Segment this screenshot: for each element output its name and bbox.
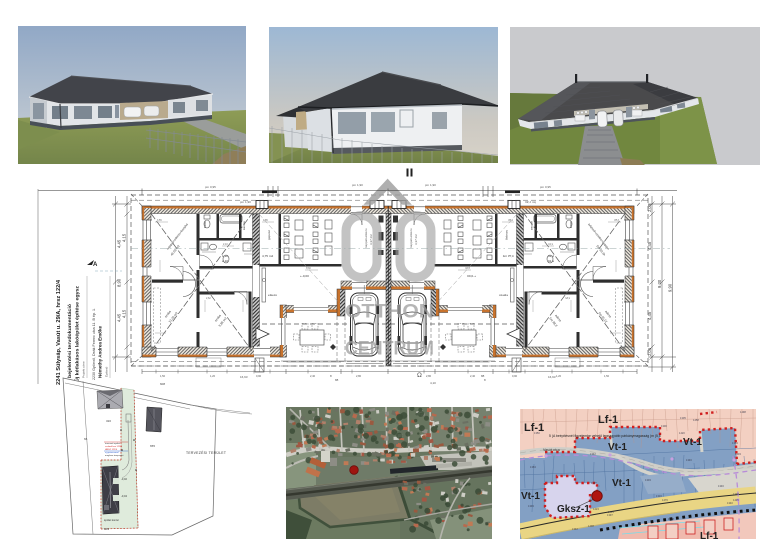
svg-text:3,30: 3,30 xyxy=(306,267,311,270)
svg-text:gepesz: gepesz xyxy=(505,230,509,240)
svg-text:+-0,00: +-0,00 xyxy=(300,274,309,278)
svg-text:bejelentési tervdokumentáció: bejelentési tervdokumentáció xyxy=(67,304,72,378)
svg-text:pm 0,95: pm 0,95 xyxy=(205,185,216,189)
svg-text:kamra: kamra xyxy=(242,221,246,230)
svg-text:+-0,00: +-0,00 xyxy=(467,274,476,278)
svg-text:1342: 1342 xyxy=(572,527,578,531)
svg-text:16,93: 16,93 xyxy=(240,375,248,379)
svg-text:TERVEZÉSI TERÜLET: TERVEZÉSI TERÜLET xyxy=(186,450,226,455)
svg-text:609: 609 xyxy=(104,527,109,531)
svg-text:1300: 1300 xyxy=(591,481,597,485)
svg-text:608: 608 xyxy=(160,382,165,386)
svg-text:kamra: kamra xyxy=(530,221,534,230)
svg-text:2,62: 2,62 xyxy=(206,297,211,300)
svg-text:1403: 1403 xyxy=(735,452,741,456)
svg-text:1305: 1305 xyxy=(680,416,686,420)
svg-text:-0,02: -0,02 xyxy=(121,477,127,481)
svg-text:Ω: Ω xyxy=(417,372,422,379)
svg-text:Lf-1: Lf-1 xyxy=(598,414,618,426)
svg-text:655: 655 xyxy=(150,444,155,448)
svg-text:3,55: 3,55 xyxy=(614,219,619,222)
svg-text:3,55: 3,55 xyxy=(157,219,162,222)
svg-text:Építtető: Építtető xyxy=(104,366,109,377)
svg-text:2,80: 2,80 xyxy=(426,374,432,378)
svg-text:1363: 1363 xyxy=(530,465,536,469)
svg-text:0,90: 0,90 xyxy=(256,374,262,378)
svg-text:1300: 1300 xyxy=(661,424,667,428)
svg-text:Lf-1: Lf-1 xyxy=(700,531,719,539)
svg-text:1,85: 1,85 xyxy=(508,219,513,222)
svg-text:pm 1,90: pm 1,90 xyxy=(525,200,536,204)
svg-text:2230 Gyömrő, Deák Ferenc utca: 2230 Gyömrő, Deák Ferenc utca 11. B ép. … xyxy=(92,308,96,380)
svg-text:1498: 1498 xyxy=(740,410,746,414)
svg-text:1476: 1476 xyxy=(662,498,668,502)
svg-text:16,93: 16,93 xyxy=(548,375,556,379)
svg-text:320: 320 xyxy=(106,419,111,423)
svg-text:nappali-etkezo: nappali-etkezo xyxy=(364,228,368,248)
svg-text:-0,04: -0,04 xyxy=(121,494,127,498)
svg-text:4,75 m2: 4,75 m2 xyxy=(503,254,514,258)
svg-text:5 (A beépítésnél figyelembe ve: 5 (A beépítésnél figyelembe vehető legna… xyxy=(549,434,661,438)
svg-text:OTTHON: OTTHON xyxy=(345,301,434,323)
svg-text:4,45: 4,45 xyxy=(647,311,652,320)
svg-text:2,10: 2,10 xyxy=(222,259,228,263)
svg-text:3,37 m2: 3,37 m2 xyxy=(414,234,418,245)
svg-text:2,40: 2,40 xyxy=(470,374,476,378)
svg-text:Vasút utca: Vasút utca xyxy=(543,448,560,452)
svg-text:4,15: 4,15 xyxy=(122,233,127,242)
svg-text:3,37 m2: 3,37 m2 xyxy=(369,234,373,245)
svg-text:gepesz: gepesz xyxy=(267,230,271,240)
svg-text:1423: 1423 xyxy=(593,507,599,511)
svg-text:66: 66 xyxy=(84,437,88,441)
svg-text:4,75 m2: 4,75 m2 xyxy=(262,254,273,258)
svg-text:2,10: 2,10 xyxy=(548,259,554,263)
svg-text:Vt-1: Vt-1 xyxy=(612,478,631,489)
svg-text:1316: 1316 xyxy=(656,494,662,498)
svg-text:2,10: 2,10 xyxy=(223,243,228,246)
svg-text:Vt-1: Vt-1 xyxy=(683,437,702,448)
svg-text:furdo: furdo xyxy=(203,221,207,228)
svg-text:Vt-1: Vt-1 xyxy=(521,491,540,502)
svg-text:pm 0,95: pm 0,95 xyxy=(540,185,551,189)
svg-text:pm 1,90: pm 1,90 xyxy=(425,183,436,187)
svg-text:tervezett epulet: tervezett epulet xyxy=(105,442,120,445)
svg-text:4,10: 4,10 xyxy=(430,381,436,385)
svg-text:1,20: 1,20 xyxy=(556,374,562,378)
svg-text:1,20: 1,20 xyxy=(222,254,228,258)
svg-text:csaladi haz 122/4: csaladi haz 122/4 xyxy=(105,446,123,448)
svg-text:Lf-1: Lf-1 xyxy=(524,422,544,434)
svg-text:2,40: 2,40 xyxy=(310,374,316,378)
svg-text:1328: 1328 xyxy=(668,517,674,521)
svg-text:1,50: 1,50 xyxy=(160,374,166,378)
svg-text:HRSZ 122/4: HRSZ 122/4 xyxy=(105,449,118,451)
svg-text:2241 Sülysáp, Vasút u. 29/A, h: 2241 Sülysáp, Vasút u. 29/A, hrsz 122/4 xyxy=(56,279,62,385)
svg-text:épület kontur: épület kontur xyxy=(104,518,119,522)
svg-text:Projekt címe: Projekt címe xyxy=(82,361,86,378)
svg-text:4,15: 4,15 xyxy=(122,309,127,318)
svg-text:2,10: 2,10 xyxy=(548,243,553,246)
svg-text:1415: 1415 xyxy=(608,510,614,514)
svg-text:pm 1,90: pm 1,90 xyxy=(240,200,251,204)
svg-text:meglevo terepszint: meglevo terepszint xyxy=(105,454,124,457)
svg-text:1346: 1346 xyxy=(686,458,692,462)
svg-text:9,90: 9,90 xyxy=(668,283,673,292)
svg-text:1303: 1303 xyxy=(645,478,651,482)
svg-text:uj gerincvonal: uj gerincvonal xyxy=(105,451,119,454)
svg-text:1438: 1438 xyxy=(588,524,594,528)
svg-text:etkezo: etkezo xyxy=(268,293,277,297)
svg-text:1,50: 1,50 xyxy=(604,374,610,378)
svg-text:1420: 1420 xyxy=(679,431,685,435)
svg-text:2,05: 2,05 xyxy=(647,347,652,356)
svg-text:1393: 1393 xyxy=(528,504,534,508)
svg-text:Némethy Andrea Emőke: Némethy Andrea Emőke xyxy=(98,325,103,378)
svg-text:A: A xyxy=(93,262,98,268)
svg-text:9,30: 9,30 xyxy=(657,279,662,288)
svg-text:3,30: 3,30 xyxy=(465,267,470,270)
svg-text:CENTRUM: CENTRUM xyxy=(345,338,434,360)
svg-text:1435: 1435 xyxy=(733,498,739,502)
svg-text:nappali-etkezo: nappali-etkezo xyxy=(409,228,413,248)
svg-text:88: 88 xyxy=(335,378,339,382)
svg-text:pm 1,90: pm 1,90 xyxy=(352,183,363,187)
svg-text:1458: 1458 xyxy=(693,418,699,422)
svg-text:Új kétlakásos lakóépület építé: Új kétlakásos lakóépület építése egysz xyxy=(75,285,80,382)
svg-text:1384: 1384 xyxy=(732,441,738,445)
svg-text:8,90: 8,90 xyxy=(117,278,122,287)
svg-text:etkezo: etkezo xyxy=(499,293,508,297)
svg-text:furdo: furdo xyxy=(569,221,573,228)
svg-text:2,62: 2,62 xyxy=(565,297,570,300)
svg-text:1,85: 1,85 xyxy=(263,219,268,222)
svg-text:2,05: 2,05 xyxy=(647,203,652,212)
svg-text:1,20: 1,20 xyxy=(548,254,554,258)
svg-text:1342: 1342 xyxy=(590,452,596,456)
svg-text:Vt-1: Vt-1 xyxy=(608,442,627,453)
svg-text:1340: 1340 xyxy=(727,501,733,505)
svg-text:Gksz-1: Gksz-1 xyxy=(557,504,590,515)
svg-text:1398: 1398 xyxy=(733,492,739,496)
svg-text:1346: 1346 xyxy=(718,484,724,488)
svg-text:2,80: 2,80 xyxy=(356,374,362,378)
svg-text:0,90: 0,90 xyxy=(512,374,518,378)
svg-text:1,20: 1,20 xyxy=(210,374,216,378)
